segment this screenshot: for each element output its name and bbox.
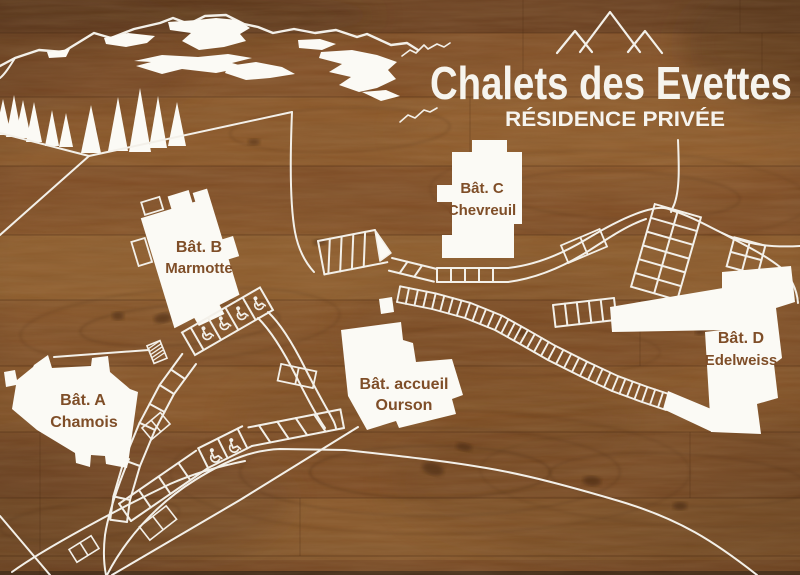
- svg-text:Bât. A: Bât. A: [60, 392, 106, 409]
- svg-text:Ourson: Ourson: [376, 397, 433, 414]
- svg-text:Bât. C: Bât. C: [460, 180, 504, 197]
- svg-text:Edelweiss: Edelweiss: [705, 352, 778, 369]
- svg-text:Chamois: Chamois: [50, 414, 118, 431]
- svg-text:Bât. D: Bât. D: [718, 330, 764, 347]
- svg-text:RÉSIDENCE PRIVÉE: RÉSIDENCE PRIVÉE: [505, 108, 725, 131]
- svg-text:Bât. B: Bât. B: [176, 239, 222, 256]
- svg-text:Bât. accueil: Bât. accueil: [360, 376, 449, 393]
- svg-text:Chevreuil: Chevreuil: [448, 202, 516, 219]
- svg-text:Chalets des Evettes: Chalets des Evettes: [430, 57, 792, 109]
- svg-text:Marmotte: Marmotte: [165, 260, 233, 277]
